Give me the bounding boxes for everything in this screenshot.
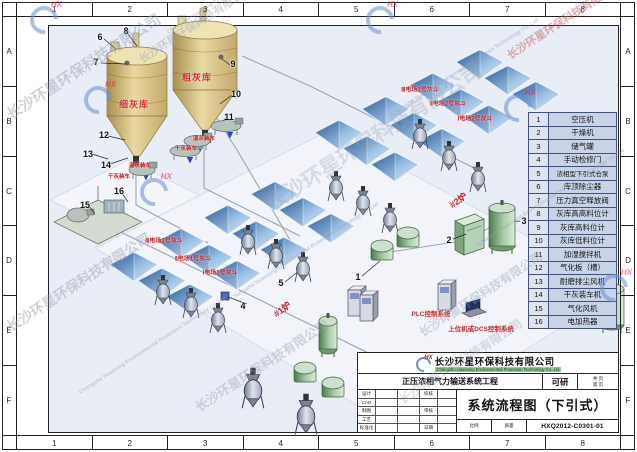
grid-row-label: B [2,86,16,156]
sig-label: 标准化 [358,424,376,432]
legend-name: 储气罐 [549,140,617,154]
sig-label: 审核 [420,407,438,415]
sig-label: CAD [358,399,376,407]
legend-name: 电加热器 [549,316,617,330]
plc-cabinet [360,291,378,321]
title-block-project-row: 正压浓相气力输送系统工程 可研 共 页 第 页 [358,374,618,390]
grid-col-label: 4 [243,436,319,450]
legend-name: 灰库高高料位计 [549,208,617,222]
grid-col-label: 6 [394,436,470,450]
legend-num: 5 [529,167,549,181]
legend-num: 1 [529,113,549,127]
grid-row-label: C [2,156,16,226]
grid-col-label: 8 [545,436,621,450]
table-row: 11加湿搅拌机 [529,248,617,262]
legend-num: 7 [529,194,549,208]
grid-band-top: 12345678 [16,2,621,17]
equipment-legend-table: 1空压机 2干燥机 3储气罐 4手动检修门 5浓相型下引式仓泵 6库顶除尘器 7… [528,112,617,329]
legend-name: 气化板（槽） [549,262,617,276]
legend-num: 10 [529,235,549,249]
legend-name: 空压机 [549,113,617,127]
table-row: 13耐磨排尘风机 [529,275,617,289]
grid-row-label: C [621,156,635,226]
logo-text: HX [424,355,432,361]
legend-name: 干灰装车机 [549,289,617,303]
silo-port [219,55,224,60]
table-row: 14干灰装车机 [529,289,617,303]
title-block-bottom-row: 比例 质量 HXQ2012-C0301-01 [457,419,618,432]
gasification-blower [67,208,89,222]
manual-maintenance-door [221,292,229,300]
grid-col-label: 7 [469,436,545,450]
grid-row-label: F [2,365,16,435]
mixer-loader [211,118,243,135]
sig-label: 制图 [358,407,376,415]
table-row: 12气化板（槽） [529,262,617,276]
legend-name: 浓相型下引式仓泵 [549,167,617,181]
title-block-main: 设计校核 CAD 制图审核 工艺 标准化日期 系统流程图（下引式） 比例 质量 … [358,390,618,432]
grid-col-label: 5 [318,2,394,16]
grid-band-bottom: 12345678 [16,435,621,450]
grid-row-label: B [621,86,635,156]
grid-row-label: E [2,295,16,365]
table-row: 16电加热器 [529,316,617,330]
silo-pump [242,368,264,409]
legend-num: 4 [529,154,549,168]
table-row: 8灰库高高料位计 [529,208,617,222]
grid-col-label: 1 [17,2,92,16]
plc-cabinet [438,280,456,310]
company-name-cn: 长沙环星环保科技有限公司 [435,354,562,368]
company-logo-icon: HX [415,355,431,371]
table-row: 2干燥机 [529,127,617,141]
legend-name: 灰库低料位计 [549,235,617,249]
drawing-title: 系统流程图（下引式） [457,390,618,419]
silo-pump [295,394,317,435]
legend-num: 2 [529,127,549,141]
legend-num: 6 [529,181,549,195]
title-block-company: HX 长沙环星环保科技有限公司 Changsha Huanxing Enviro… [358,353,618,374]
sig-label: 设计 [358,390,376,398]
air-compressor [371,240,393,260]
legend-num: 3 [529,140,549,154]
legend-num: 8 [529,208,549,222]
air-compressor [397,227,419,247]
grid-col-label: 3 [167,2,243,16]
air-compressor [294,362,316,382]
grid-row-label: D [2,225,16,295]
design-stage: 可研 [543,374,578,389]
grid-col-label: 1 [17,436,92,450]
grid-row-label: E [621,295,635,365]
title-block: HX 长沙环星环保科技有限公司 Changsha Huanxing Enviro… [357,352,619,433]
grid-col-label: 8 [545,2,621,16]
silo-port [125,61,130,66]
legend-name: 压力真空释放阀 [549,194,617,208]
page-count: 共 页 第 页 [578,374,618,389]
grid-col-label: 7 [469,2,545,16]
table-row: 4手动检修门 [529,154,617,168]
legend-num: 11 [529,248,549,262]
table-row: 7压力真空释放阀 [529,194,617,208]
legend-num: 13 [529,275,549,289]
signature-grid: 设计校核 CAD 制图审核 工艺 标准化日期 [358,390,457,432]
legend-num: 12 [529,262,549,276]
table-row: 15气化风机 [529,302,617,316]
drawing-sheet: 1空压机 2干燥机 3储气罐 4手动检修门 5浓相型下引式仓泵 6库顶除尘器 7… [0,0,637,452]
grid-row-label: A [621,17,635,86]
sig-label: 校核 [420,390,438,398]
legend-name: 加湿搅拌机 [549,248,617,262]
air-storage-tank [489,200,515,254]
grid-col-label: 2 [92,436,168,450]
grid-col-label: 6 [394,2,470,16]
legend-name: 耐磨排尘风机 [549,275,617,289]
table-row: 1空压机 [529,113,617,127]
silo-fine-ash [107,33,167,169]
dryer [455,214,484,255]
sig-label: 工艺 [358,416,376,424]
air-compressor [322,377,344,397]
grid-row-label: F [621,365,635,435]
grid-band-left: ABCDEF [2,16,17,436]
table-row: 9灰库高料位计 [529,221,617,235]
legend-name: 库顶除尘器 [549,181,617,195]
page-number: 第 页 [593,382,603,388]
air-storage-tank [319,313,337,357]
sig-label: 日期 [420,424,438,432]
scale-label: 比例 [457,420,492,432]
legend-num: 15 [529,302,549,316]
grid-band-right: ABCDEF [620,16,635,436]
legend-num: 9 [529,221,549,235]
company-name-en: Changsha Huanxing Environmental Protecti… [435,367,562,372]
grid-row-label: D [621,225,635,295]
table-row: 5浓相型下引式仓泵 [529,167,617,181]
grid-col-label: 2 [92,2,168,16]
legend-num: 16 [529,316,549,330]
legend-name: 手动检修门 [549,154,617,168]
table-row: 3储气罐 [529,140,617,154]
silo-pump [470,162,486,192]
weight-label: 质量 [492,420,527,432]
project-name: 正压浓相气力输送系统工程 [358,374,543,389]
grid-col-label: 5 [318,436,394,450]
legend-name: 干燥机 [549,127,617,141]
table-row: 6库顶除尘器 [529,181,617,195]
table-row: 10灰库低料位计 [529,235,617,249]
grid-col-label: 3 [167,436,243,450]
legend-num: 14 [529,289,549,303]
drawing-number: HXQ2012-C0301-01 [527,420,618,432]
legend-name: 气化风机 [549,302,617,316]
grid-col-label: 4 [243,2,319,16]
legend-name: 灰库高料位计 [549,221,617,235]
grid-row-label: A [2,17,16,86]
